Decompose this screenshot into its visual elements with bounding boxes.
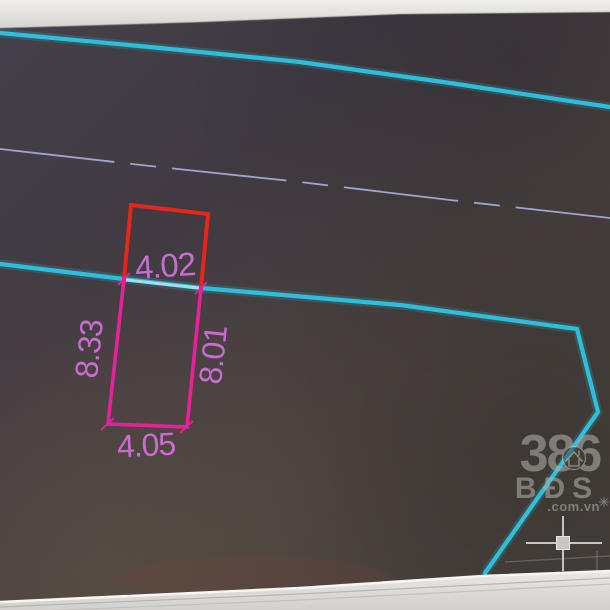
watermark-domain: .com.vn <box>547 499 600 514</box>
watermark-logo: 386 BĐS .com.vn <box>515 425 609 514</box>
dimension-label-left[interactable]: 8.33 <box>68 318 110 380</box>
monitor-photo: 4.02 8.33 8.01 4.05 386 BĐS .com.vn <box>0 0 610 610</box>
cad-viewport[interactable]: 4.02 8.33 8.01 4.05 386 BĐS .com.vn <box>0 0 610 610</box>
crosshair-pickbox <box>557 537 570 550</box>
dimension-label-top[interactable]: 4.02 <box>134 245 197 286</box>
dimension-label-bottom[interactable]: 4.05 <box>116 425 176 464</box>
starburst-icon <box>599 497 609 507</box>
dimension-label-right[interactable]: 8.01 <box>192 324 234 386</box>
